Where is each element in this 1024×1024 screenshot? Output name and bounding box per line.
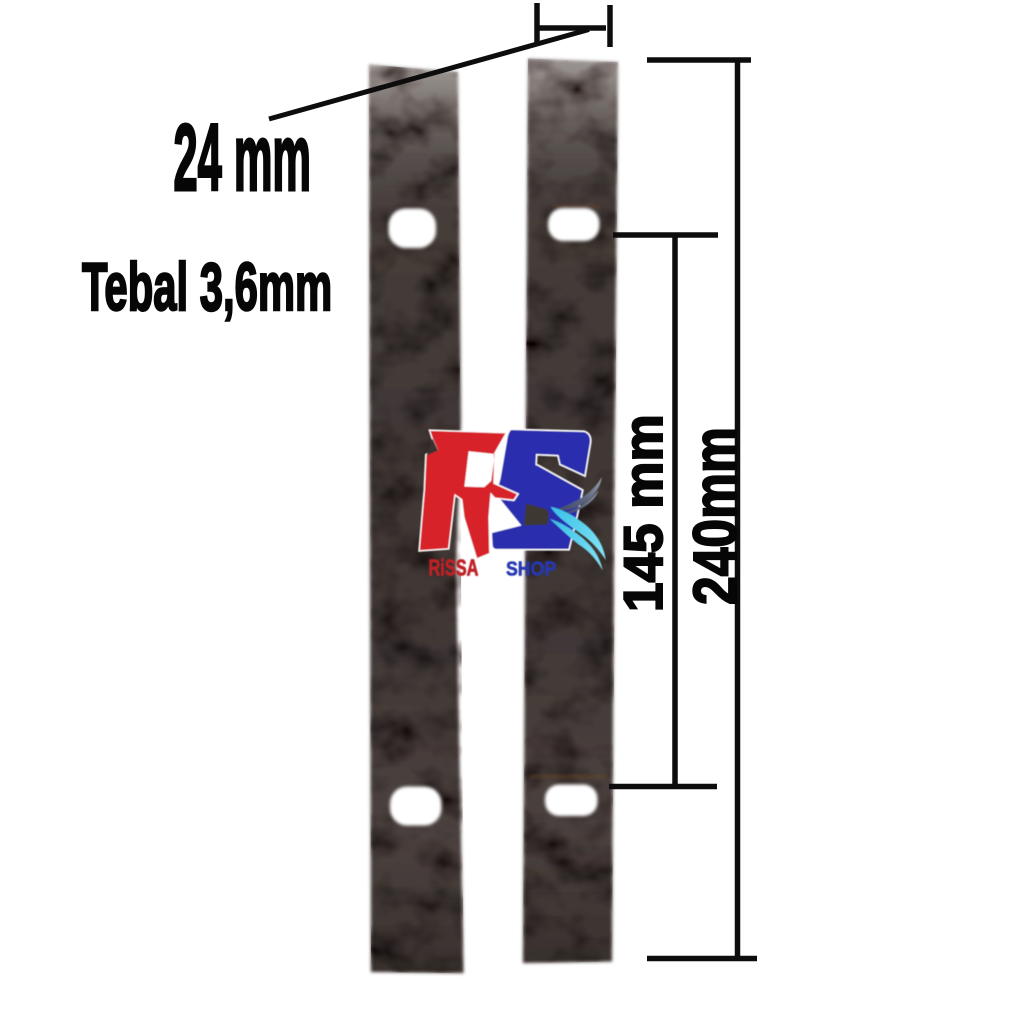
svg-text:RiSSA: RiSSA [429,556,479,581]
svg-text:145 mm: 145 mm [613,414,674,612]
svg-text:24 mm: 24 mm [174,104,312,211]
svg-text:SHOP: SHOP [506,558,556,580]
svg-text:240mm: 240mm [681,427,749,605]
svg-text:Tebal 3,6mm: Tebal 3,6mm [82,249,332,325]
